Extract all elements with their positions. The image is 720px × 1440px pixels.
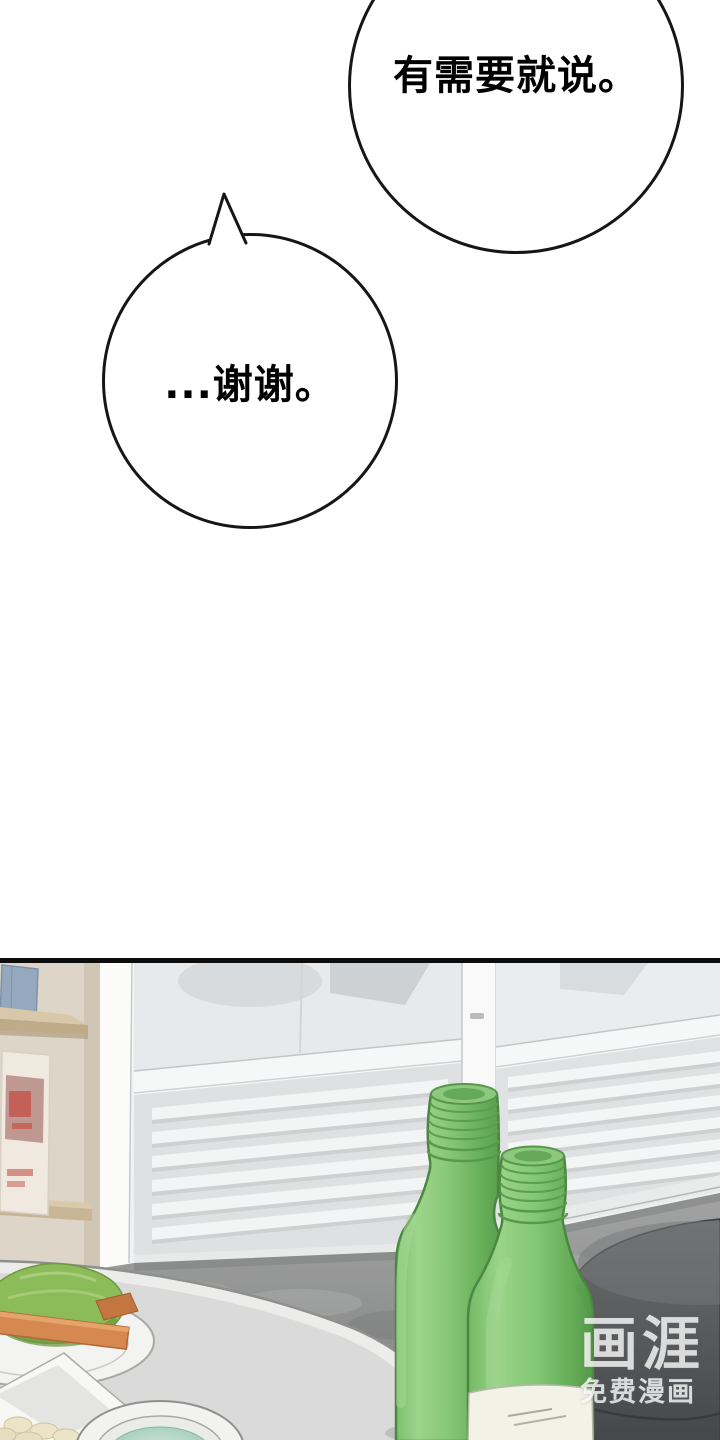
speech-text-reply: ...谢谢。 [164, 352, 336, 410]
bottle-label [468, 1385, 593, 1440]
panel-art [0, 963, 720, 1440]
speech-bubble-top: 有需要就说。 [348, 0, 684, 254]
speech-bubble-tail-icon [205, 190, 251, 248]
comic-page: 有需要就说。 ...谢谢。 [0, 0, 720, 1440]
poster [0, 1051, 50, 1215]
comic-panel: 画涯 免费漫画 [0, 958, 720, 1440]
speech-bubble-reply: ...谢谢。 [102, 233, 398, 529]
speech-text-top: 有需要就说。 [393, 43, 639, 101]
